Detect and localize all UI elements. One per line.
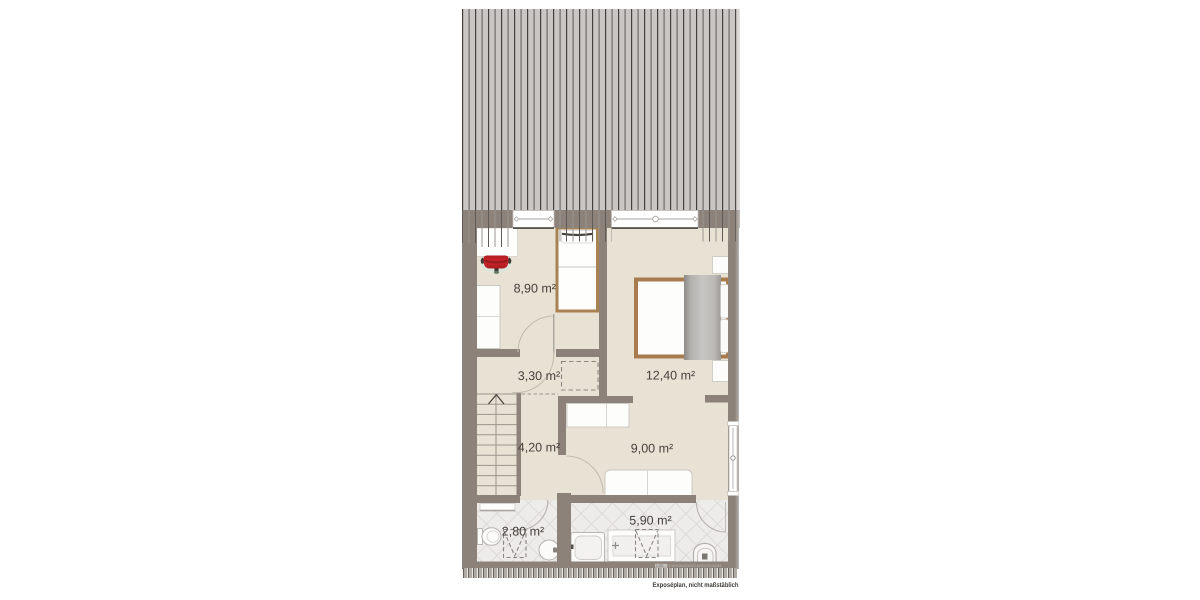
svg-text:2,80 m²: 2,80 m² — [502, 525, 544, 539]
svg-text:Exposéplan, nicht maßstäblich: Exposéplan, nicht maßstäblich — [653, 582, 739, 589]
svg-text:4,20 m²: 4,20 m² — [518, 441, 560, 455]
svg-text:12,40 m²: 12,40 m² — [646, 369, 695, 383]
svg-text:9,00 m²: 9,00 m² — [631, 442, 673, 456]
svg-text:5,90 m²: 5,90 m² — [629, 514, 671, 528]
svg-text:3,30 m²: 3,30 m² — [518, 369, 560, 383]
svg-text:8,90 m²: 8,90 m² — [514, 282, 556, 296]
svg-text:ImmobilienCenterGmbH: ImmobilienCenterGmbH — [669, 563, 721, 568]
svg-text:LBS: LBS — [656, 564, 664, 568]
